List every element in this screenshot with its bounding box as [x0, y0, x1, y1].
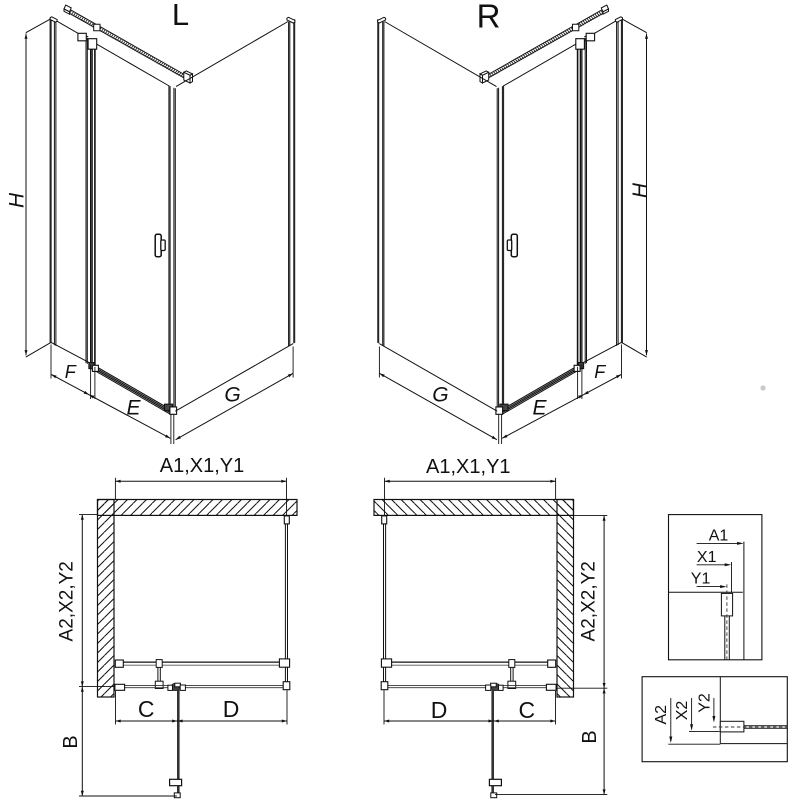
svg-text:F: F: [594, 362, 606, 382]
svg-text:F: F: [65, 362, 77, 382]
svg-text:L: L: [172, 0, 189, 32]
svg-text:X2: X2: [674, 701, 691, 721]
svg-text:H: H: [629, 182, 652, 198]
svg-text:G: G: [432, 384, 448, 407]
svg-text:A1,X1,Y1: A1,X1,Y1: [426, 456, 511, 478]
svg-text:C: C: [138, 696, 155, 722]
svg-text:H: H: [6, 192, 29, 208]
svg-text:D: D: [223, 696, 240, 722]
svg-text:C: C: [518, 697, 535, 723]
svg-text:R: R: [477, 0, 501, 35]
svg-text:A2,X2,Y2: A2,X2,Y2: [57, 561, 78, 641]
svg-text:X1: X1: [697, 549, 717, 566]
svg-text:Y2: Y2: [696, 693, 713, 713]
svg-text:E: E: [126, 396, 141, 419]
svg-text:B: B: [60, 735, 82, 748]
svg-text:E: E: [532, 396, 547, 419]
svg-text:A2,X2,Y2: A2,X2,Y2: [578, 561, 599, 641]
svg-text:A1,X1,Y1: A1,X1,Y1: [160, 455, 245, 477]
svg-text:G: G: [224, 384, 240, 407]
svg-text:D: D: [431, 697, 448, 723]
svg-text:B: B: [579, 730, 601, 743]
svg-text:A1: A1: [709, 528, 729, 545]
svg-text:Y1: Y1: [691, 570, 711, 587]
svg-text:A2: A2: [653, 705, 670, 725]
